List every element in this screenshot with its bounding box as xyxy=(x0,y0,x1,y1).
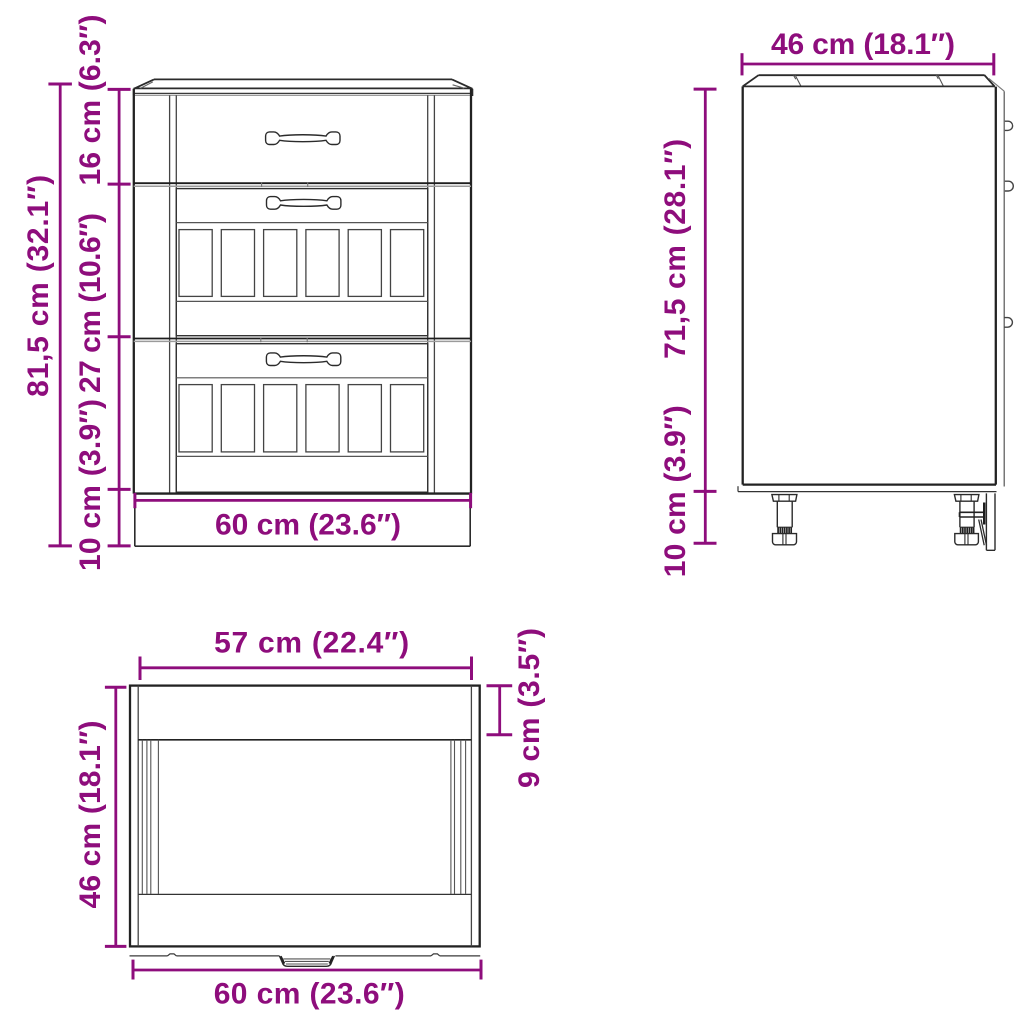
svg-text:46 cm (18.1″): 46 cm (18.1″) xyxy=(771,28,955,61)
svg-text:60 cm (23.6″): 60 cm (23.6″) xyxy=(215,508,401,541)
svg-text:57 cm (22.4″): 57 cm (22.4″) xyxy=(214,627,409,660)
svg-text:60 cm (23.6″): 60 cm (23.6″) xyxy=(214,978,405,1011)
svg-text:71,5 cm (28.1″): 71,5 cm (28.1″) xyxy=(659,139,692,359)
svg-text:16 cm (6.3″): 16 cm (6.3″) xyxy=(74,15,107,186)
svg-text:10 cm (3.9″): 10 cm (3.9″) xyxy=(74,399,107,571)
svg-text:81,5 cm (32.1″): 81,5 cm (32.1″) xyxy=(22,175,55,397)
svg-text:10 cm (3.9″): 10 cm (3.9″) xyxy=(659,405,692,577)
svg-text:46 cm (18.1″): 46 cm (18.1″) xyxy=(74,721,107,909)
svg-text:9 cm (3.5″): 9 cm (3.5″) xyxy=(513,628,546,788)
svg-text:27 cm (10.6″): 27 cm (10.6″) xyxy=(74,213,107,393)
